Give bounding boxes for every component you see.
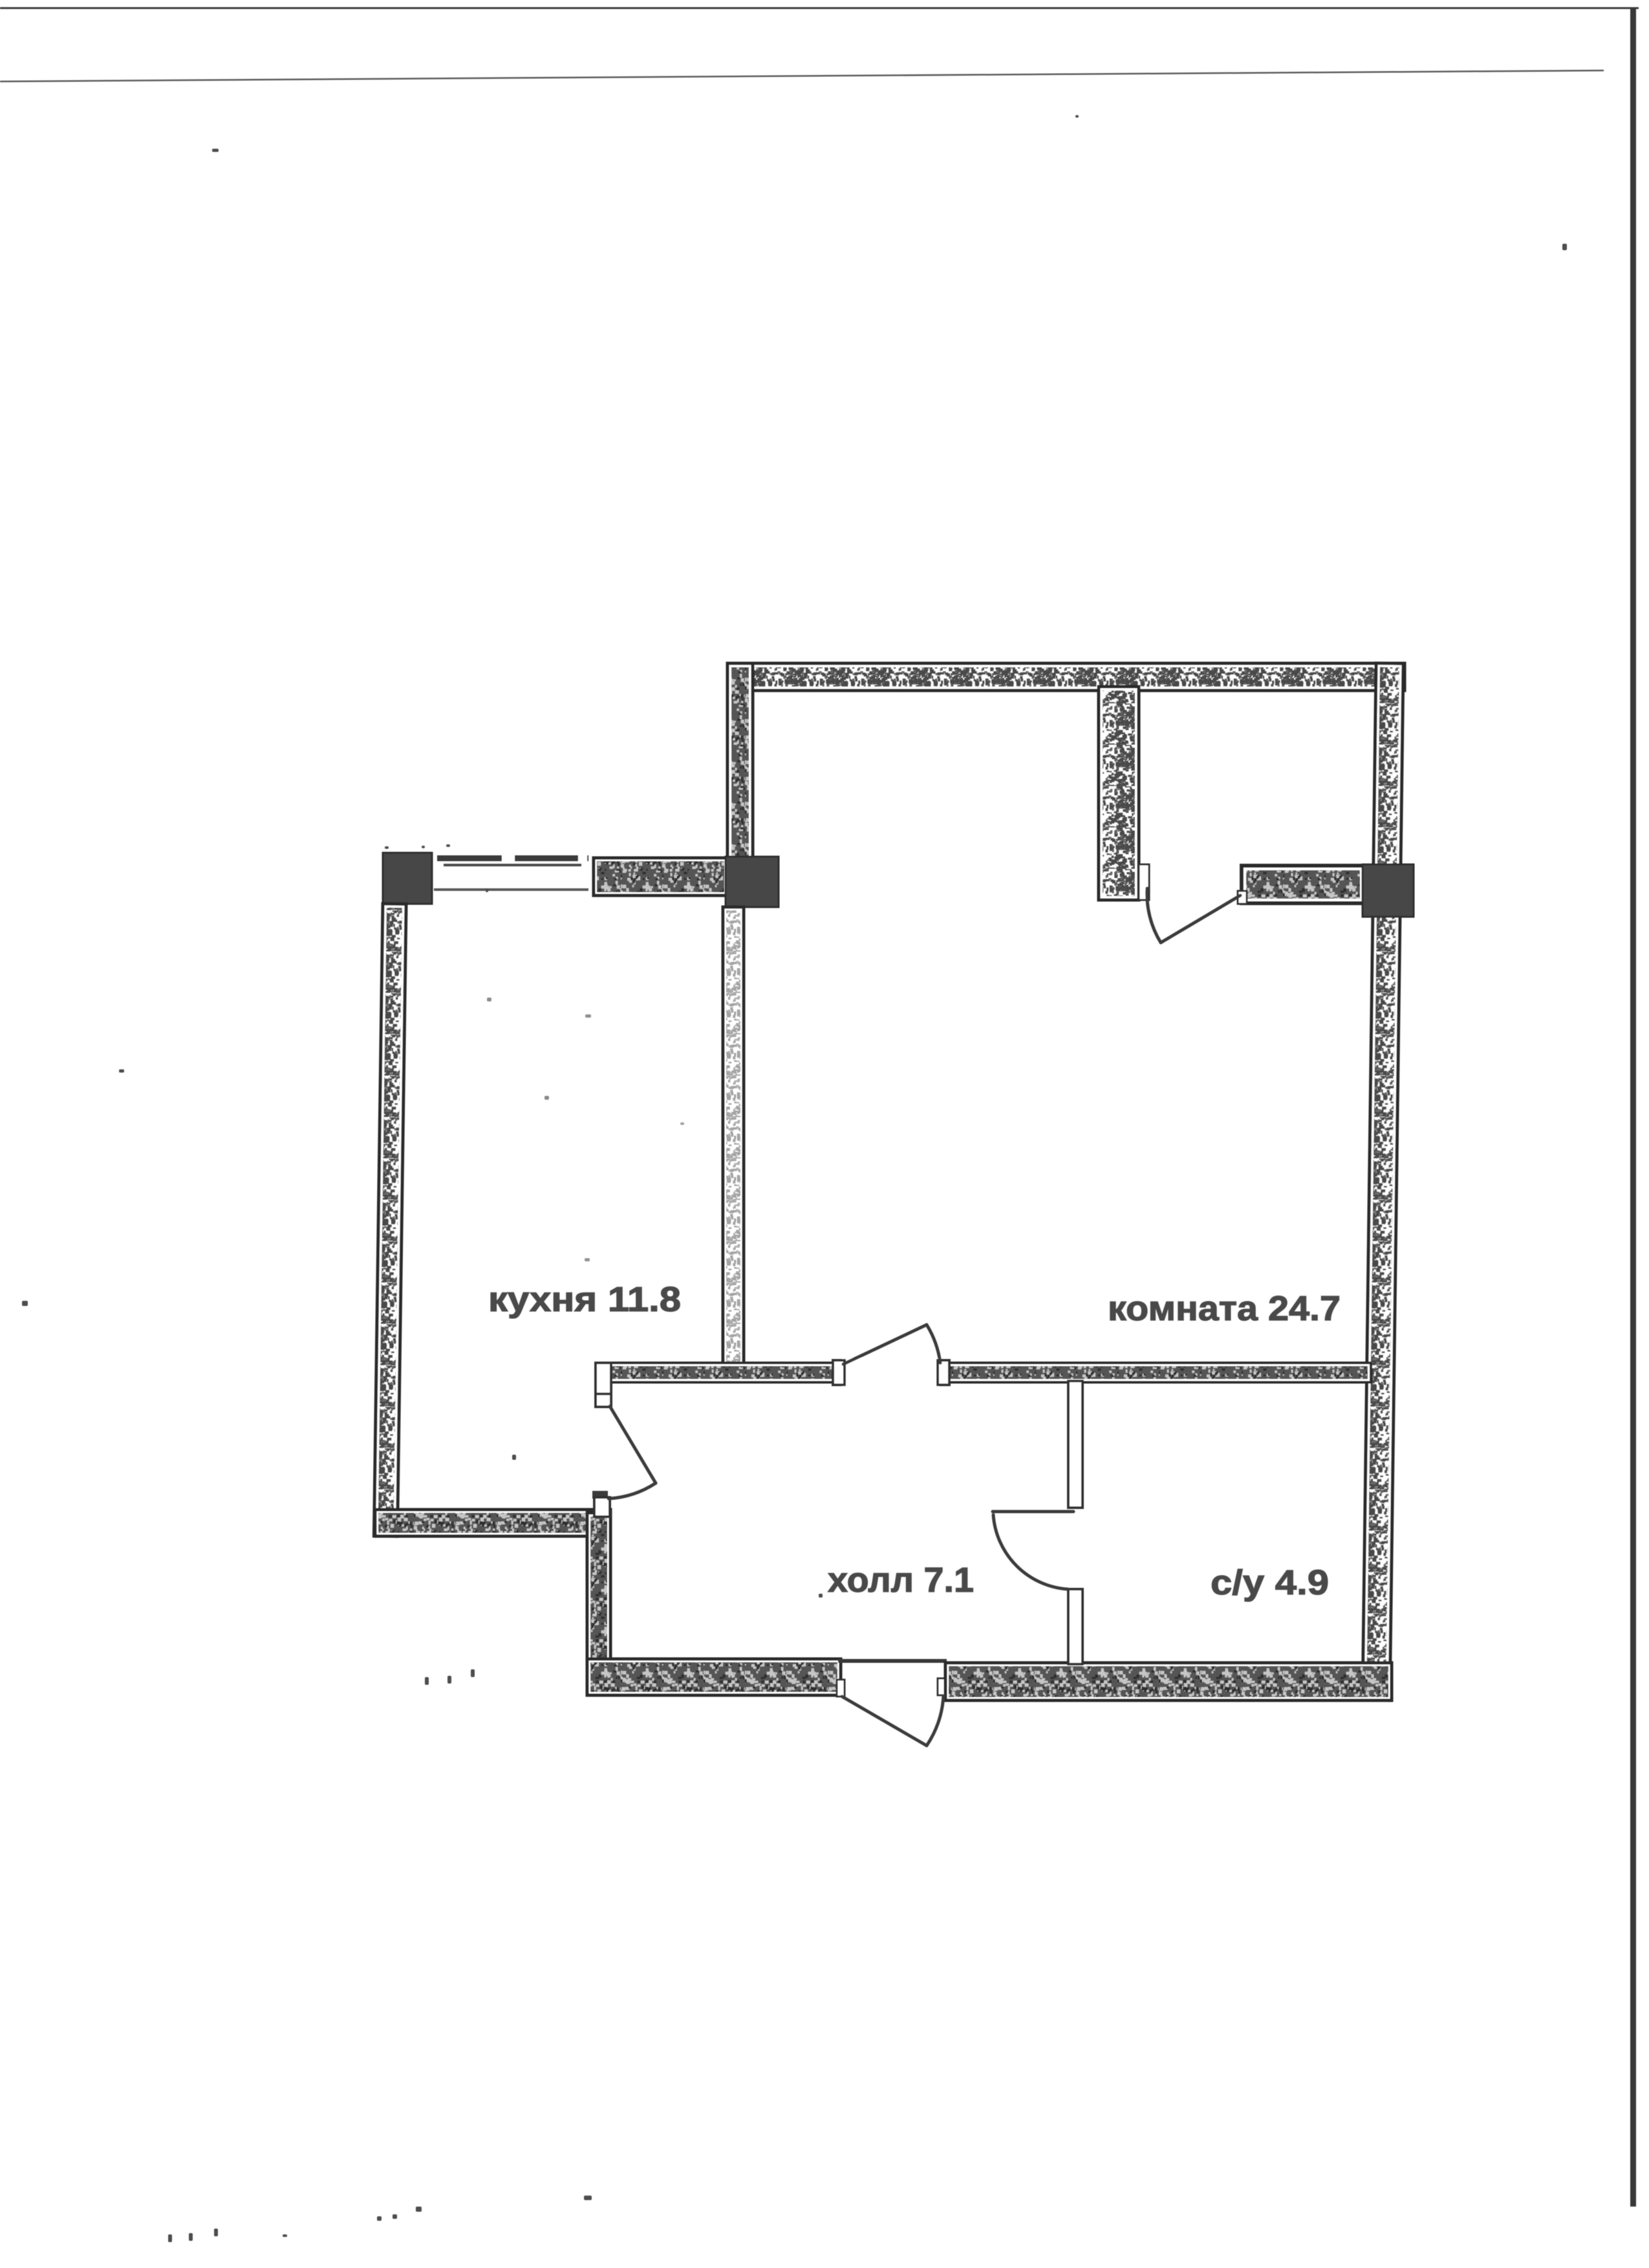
svg-text:с/у 4.9: с/у 4.9 <box>1211 1563 1329 1602</box>
svg-text:кухня 11.8: кухня 11.8 <box>488 1280 681 1319</box>
svg-text:комната 24.7: комната 24.7 <box>1108 1289 1341 1328</box>
svg-text:холл 7.1: холл 7.1 <box>828 1561 974 1599</box>
